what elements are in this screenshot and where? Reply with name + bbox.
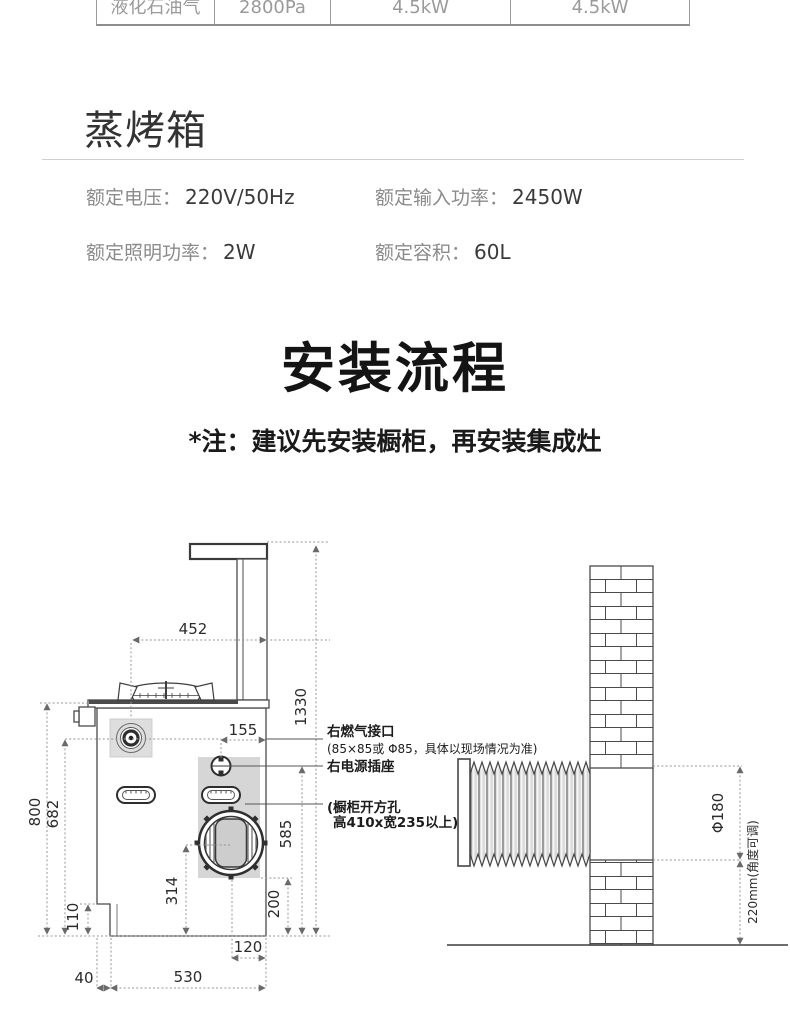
fan-outlet [195, 807, 268, 880]
spec-rated-capacity: 额定容积：60L [375, 238, 511, 265]
duct-flange [458, 759, 470, 866]
dim-314: 314 [163, 877, 181, 906]
label-cabinet-opening-2: 高410x宽235以上) [333, 814, 458, 831]
power-socket [212, 757, 231, 776]
dim-682: 682 [44, 800, 62, 829]
spec-value: 220V/50Hz [185, 185, 295, 209]
dim-800: 800 [26, 798, 44, 827]
dim-1330: 1330 [292, 688, 310, 726]
dim-155: 155 [229, 721, 258, 739]
installation-note: *注：建议先安装橱柜，再安装集成灶 [0, 422, 790, 458]
label-cabinet-opening-1: (橱柜开方孔 [327, 799, 401, 816]
spec-value: 2W [223, 240, 256, 264]
section-title-installation: 安装流程 [0, 324, 790, 403]
spec-rated-input-power: 额定输入功率：2450W [375, 183, 583, 210]
gas-connector [110, 719, 152, 757]
table-cell: 4.5kW [331, 0, 511, 24]
brick-wall-lower [590, 860, 653, 945]
spec-label: 额定电压： [86, 187, 181, 209]
spec-label: 额定容积： [375, 242, 470, 264]
section-title-steam-oven: 蒸烤箱 [84, 98, 207, 156]
label-gas-port: 右燃气接口 [327, 723, 395, 740]
vent-left [117, 787, 155, 803]
dim-duct-height: 220mm(角度可调) [745, 820, 760, 924]
side-knob [74, 711, 79, 722]
spec-rated-lighting-power: 额定照明功率：2W [86, 238, 256, 265]
table-cell: 液化石油气 [97, 0, 215, 24]
brick-wall-upper [590, 566, 653, 768]
dim-40: 40 [74, 969, 93, 987]
dim-530: 530 [174, 968, 203, 986]
hood-canopy [190, 544, 267, 559]
table-cell: 4.5kW [511, 0, 689, 24]
flexible-duct [470, 762, 590, 866]
dim-585: 585 [277, 820, 295, 849]
burner [118, 681, 214, 700]
spec-label: 额定输入功率： [375, 187, 508, 209]
dim-duct-diameter: Φ180 [709, 793, 727, 833]
spec-value: 60L [474, 240, 511, 264]
dim-110: 110 [64, 903, 82, 932]
side-bracket [79, 707, 95, 726]
vent-right [202, 787, 240, 803]
label-power-socket: 右电源插座 [327, 758, 395, 775]
table-cell: 2800Pa [215, 0, 331, 24]
gas-spec-table: 液化石油气 2800Pa 4.5kW 4.5kW [96, 0, 690, 26]
installation-diagram: 452 1330 155 800 682 110 314 200 585 120… [0, 520, 790, 1033]
label-gas-port-note: (85×85或 Φ85，具体以现场情况为准) [327, 742, 538, 756]
dim-120: 120 [234, 938, 263, 956]
divider [42, 159, 744, 160]
spec-value: 2450W [512, 185, 583, 209]
product-detail-page: 液化石油气 2800Pa 4.5kW 4.5kW 蒸烤箱 额定电压：220V/5… [0, 0, 790, 1033]
spec-label: 额定照明功率： [86, 242, 219, 264]
dim-452: 452 [179, 620, 208, 638]
hood-chimney [237, 559, 267, 700]
dim-200: 200 [265, 890, 283, 919]
spec-rated-voltage: 额定电压：220V/50Hz [86, 183, 295, 210]
